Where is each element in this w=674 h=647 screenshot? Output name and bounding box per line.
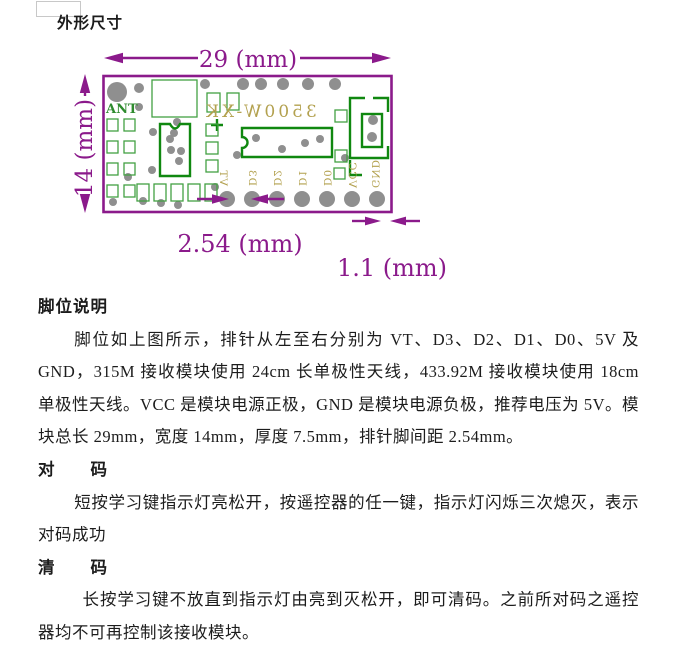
dimension-pitch: 2.54 (mm) xyxy=(177,194,302,258)
pin-label-gnd: GND xyxy=(369,159,381,188)
document-body: 脚位说明 脚位如上图所示，排针从左至右分别为 VT、D3、D2、D1、D0、5V… xyxy=(38,291,639,647)
pin-label-d0: D0 xyxy=(321,169,333,186)
pcb-holes xyxy=(107,78,378,209)
pin-label-d1: D1 xyxy=(296,169,308,186)
dimension-width-label: 14 (mm) xyxy=(72,99,98,197)
dimension-width: 14 (mm) xyxy=(72,74,98,213)
pin-label-d2: D2 xyxy=(271,169,283,186)
dimension-pitch-label: 2.54 (mm) xyxy=(177,230,302,258)
section-body-pairing: 短按学习键指示灯亮松开，按遥控器的任一键，指示灯闪烁三次熄灭，表示对码成功 xyxy=(38,487,639,552)
section-heading-pinout: 脚位说明 xyxy=(38,291,639,324)
header-pin-pads xyxy=(219,191,385,207)
section-heading-clearing: 清 码 xyxy=(38,552,639,585)
pin-labels: VT D3 D2 D1 D0 VCC GND xyxy=(217,159,381,189)
pin-label-vt: VT xyxy=(217,169,229,187)
silk-model-text: 3500W-XK xyxy=(203,102,316,122)
section-body-pinout: 脚位如上图所示，排针从左至右分别为 VT、D3、D2、D1、D0、5V 及 GN… xyxy=(38,324,639,454)
dimension-pad: 1.1 (mm) xyxy=(337,217,447,282)
ant-label: ANT xyxy=(105,102,138,117)
pcb-dimension-diagram: 29 (mm) 14 (mm) xyxy=(0,40,674,290)
document-page: 外形尺寸 29 (mm) 14 (mm) xyxy=(0,0,674,647)
dimension-length-label: 29 (mm) xyxy=(199,47,297,73)
dimension-length: 29 (mm) xyxy=(104,47,391,73)
dimension-pad-label: 1.1 (mm) xyxy=(337,254,447,282)
pin-label-d3: D3 xyxy=(246,169,258,186)
pin-label-vcc: VCC xyxy=(346,161,358,189)
page-title: 外形尺寸 xyxy=(57,11,123,33)
section-body-clearing: 长按学习键不放直到指示灯由亮到灭松开，即可清码。之前所对码之遥控器均不可再控制该… xyxy=(38,584,639,647)
section-heading-pairing: 对 码 xyxy=(38,454,639,487)
